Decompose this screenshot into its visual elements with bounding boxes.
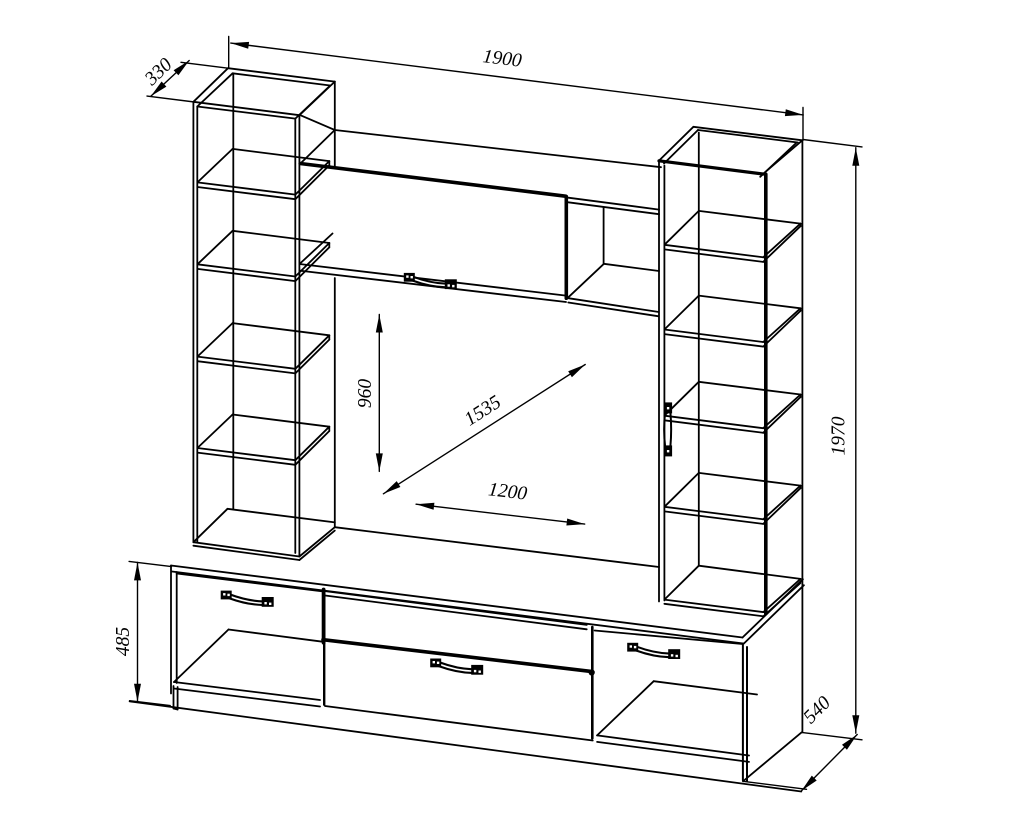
svg-text:485: 485 — [113, 627, 134, 657]
svg-text:960: 960 — [355, 379, 376, 409]
svg-text:1970: 1970 — [828, 416, 849, 455]
